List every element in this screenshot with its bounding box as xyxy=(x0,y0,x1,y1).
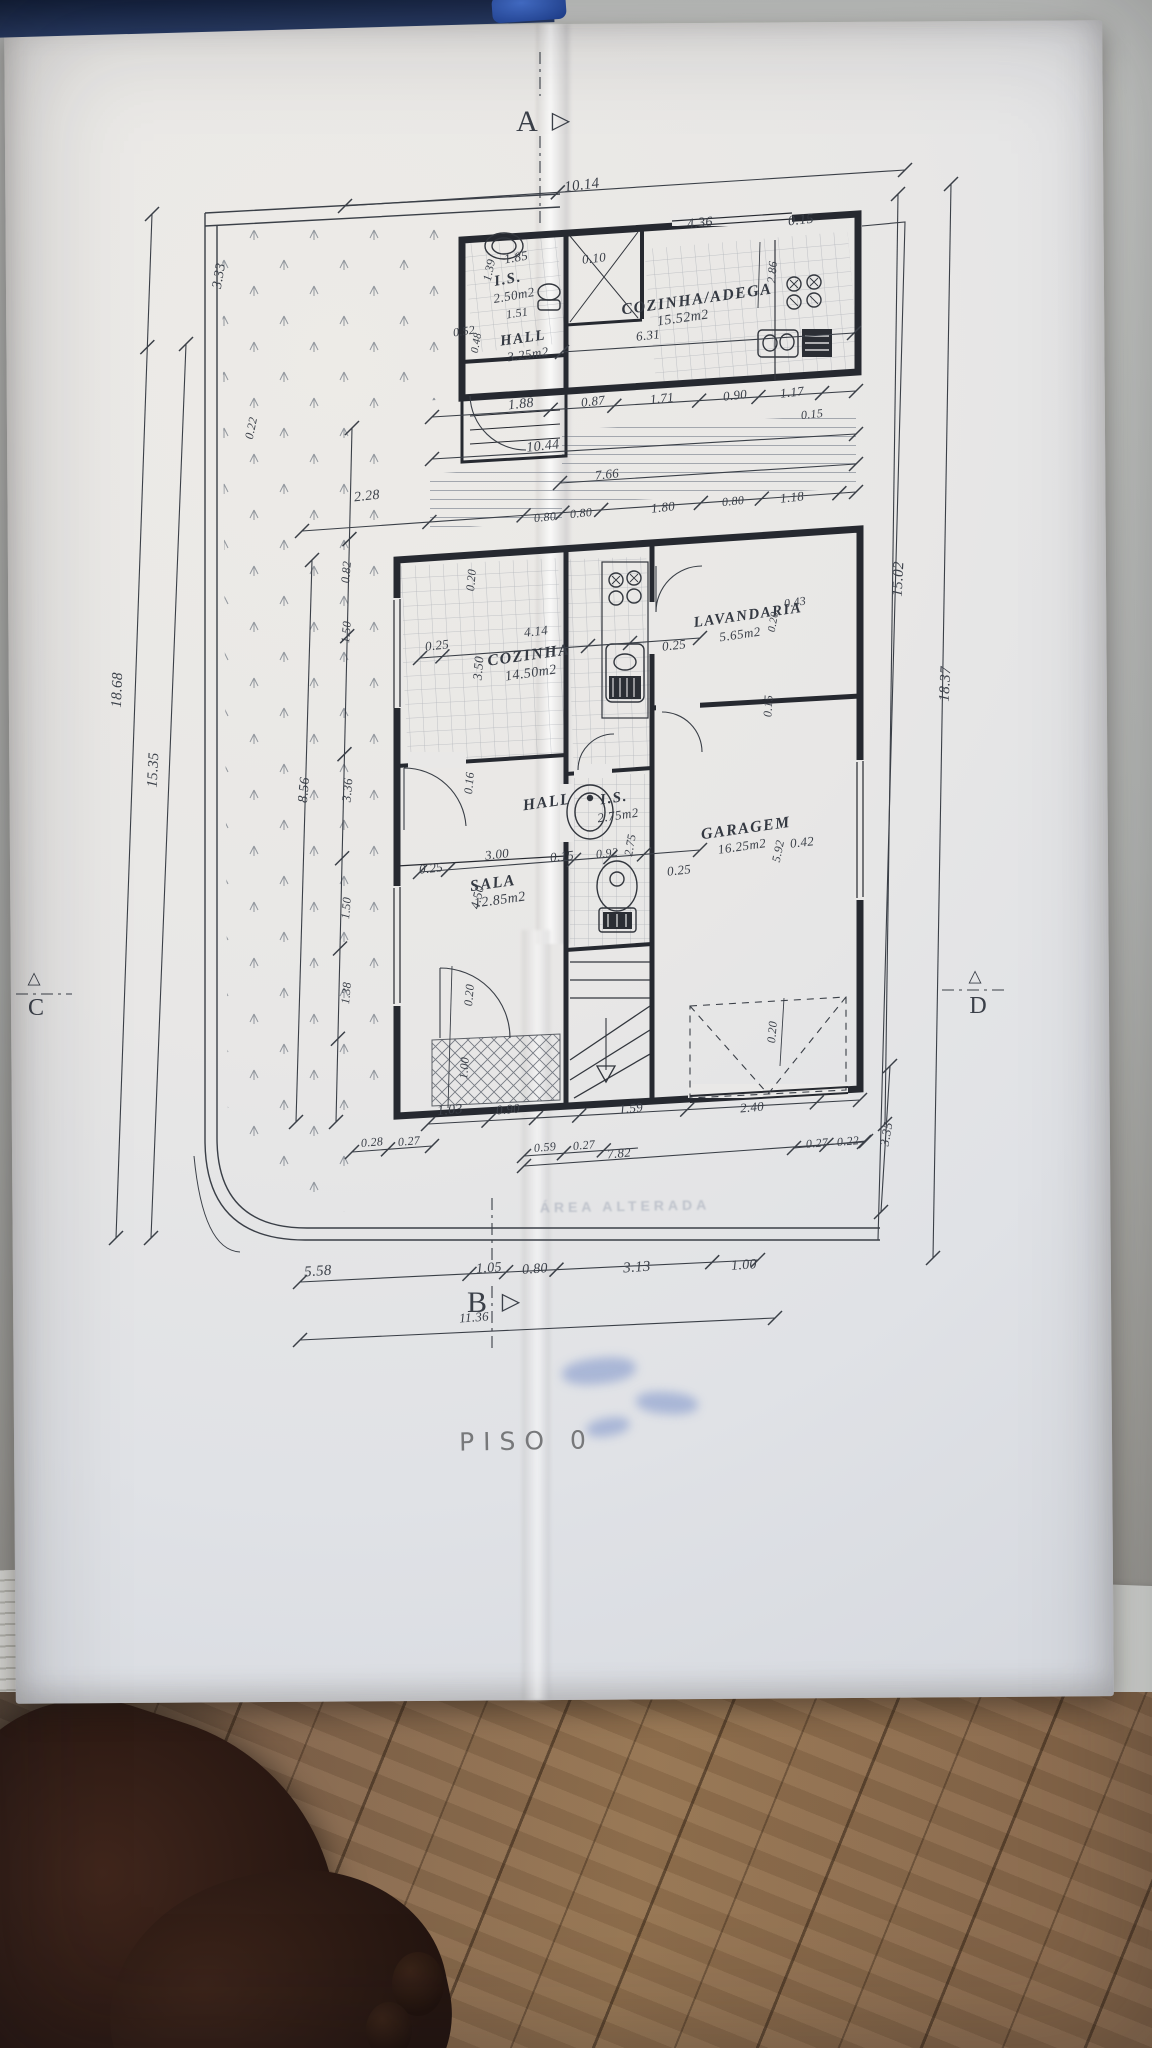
terrace-hatch xyxy=(430,414,856,530)
stairs xyxy=(570,962,650,1098)
tiled-floors xyxy=(398,231,860,946)
entry-porch-hatch xyxy=(432,1034,560,1106)
appliance-icon xyxy=(802,329,832,357)
floor-plan-drawing xyxy=(0,0,1152,2048)
garage-door-dashed xyxy=(690,997,846,1098)
photo-of-floor-plan: A▷10.144.360.150.101.851.39I.S.2.50m22.8… xyxy=(0,0,1152,2048)
